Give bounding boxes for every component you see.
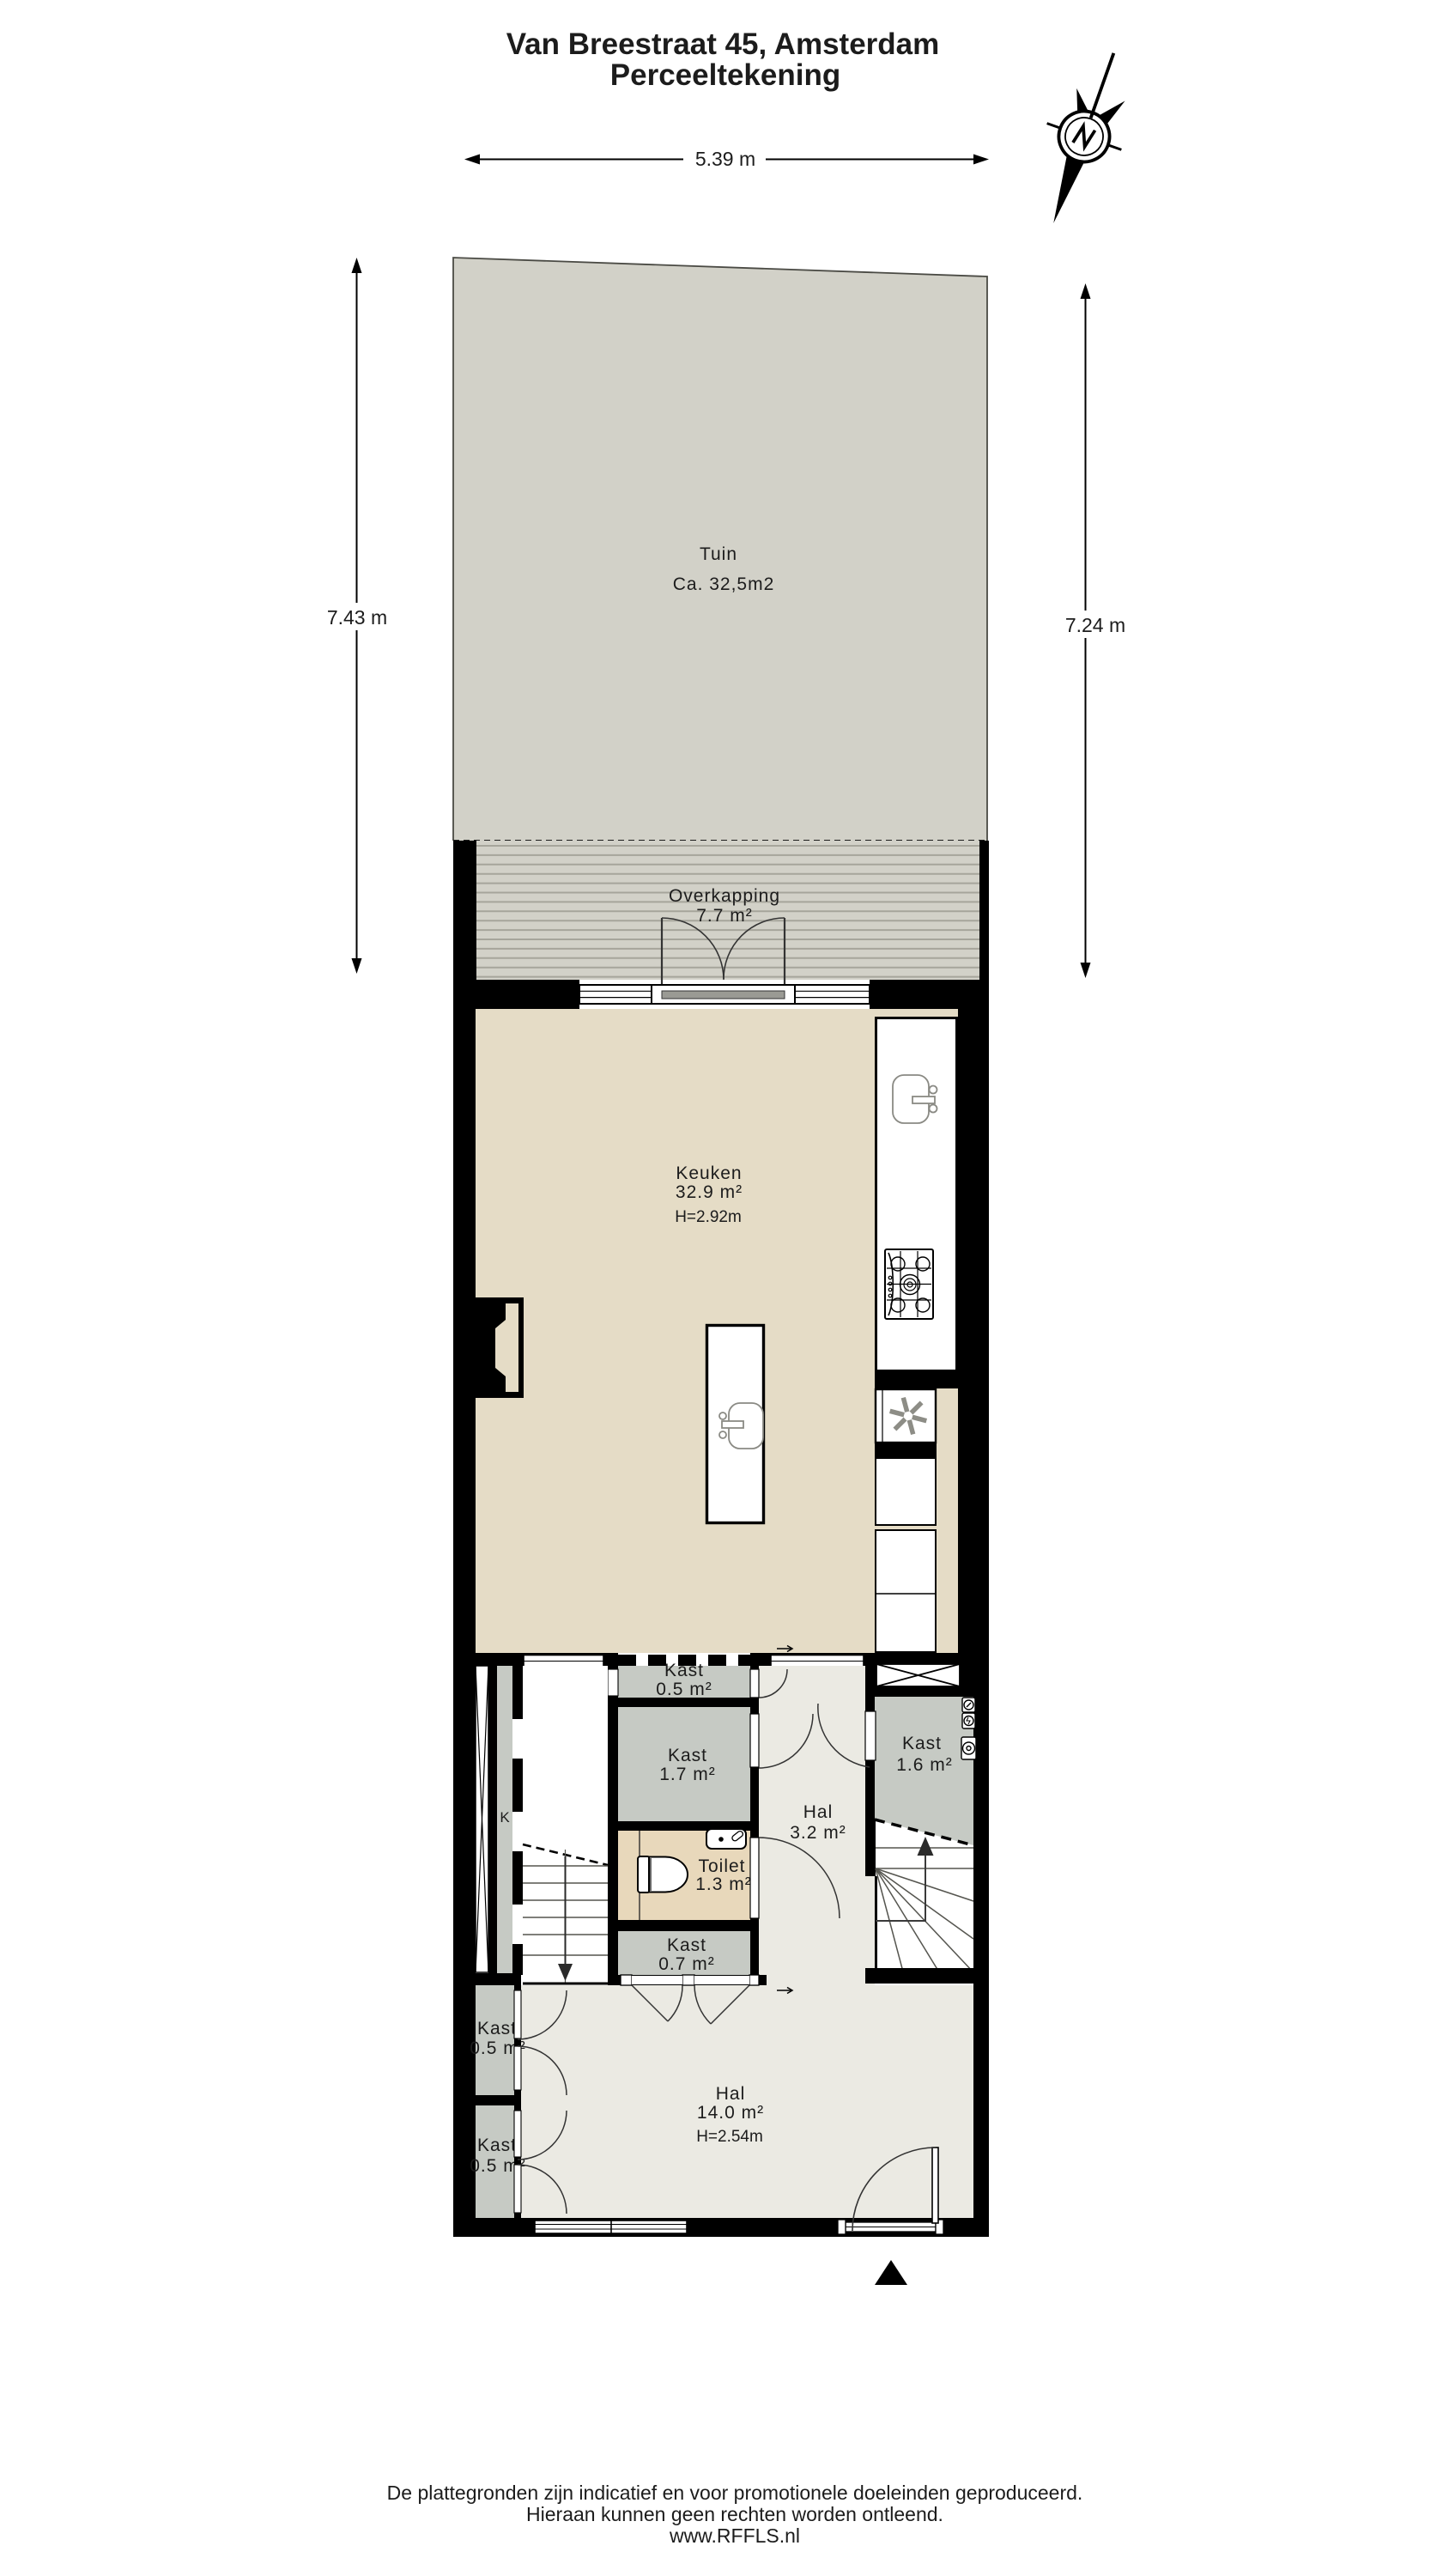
svg-text:Kast: Kast bbox=[477, 2136, 517, 2155]
svg-text:1.6 m²: 1.6 m² bbox=[896, 1755, 953, 1775]
svg-text:5.39 m: 5.39 m bbox=[695, 148, 755, 170]
svg-text:Hal: Hal bbox=[716, 2084, 746, 2104]
svg-text:H=2.54m: H=2.54m bbox=[696, 2128, 763, 2146]
svg-text:14.0 m²: 14.0 m² bbox=[697, 2103, 764, 2123]
svg-text:H=2.92m: H=2.92m bbox=[675, 1208, 742, 1226]
svg-text:Tuin: Tuin bbox=[700, 544, 737, 564]
svg-text:7.7 m²: 7.7 m² bbox=[696, 906, 753, 926]
svg-text:0.5 m²: 0.5 m² bbox=[656, 1680, 712, 1699]
svg-text:Ca. 32,5m2: Ca. 32,5m2 bbox=[673, 574, 775, 594]
svg-text:Hal: Hal bbox=[803, 1802, 834, 1822]
svg-text:1.7 m²: 1.7 m² bbox=[659, 1765, 716, 1784]
svg-text:Kast: Kast bbox=[902, 1734, 942, 1753]
svg-text:De plattegronden zijn indicati: De plattegronden zijn indicatief en voor… bbox=[387, 2482, 1083, 2504]
svg-text:0.7 m²: 0.7 m² bbox=[658, 1954, 715, 1974]
svg-text:Kast: Kast bbox=[477, 2019, 517, 2038]
svg-text:Overkapping: Overkapping bbox=[669, 886, 780, 906]
svg-text:Kast: Kast bbox=[668, 1746, 707, 1765]
svg-text:7.43 m: 7.43 m bbox=[327, 606, 387, 629]
svg-text:www.RFFLS.nl: www.RFFLS.nl bbox=[669, 2524, 800, 2547]
svg-text:Toilet: Toilet bbox=[698, 1856, 745, 1876]
svg-text:Kast: Kast bbox=[667, 1935, 706, 1955]
svg-text:Van Breestraat 45, Amsterdam: Van Breestraat 45, Amsterdam bbox=[506, 27, 940, 61]
svg-text:K: K bbox=[500, 1809, 510, 1826]
svg-text:32.9 m²: 32.9 m² bbox=[676, 1182, 743, 1202]
svg-text:1.3 m²: 1.3 m² bbox=[695, 1874, 752, 1894]
svg-text:Keuken: Keuken bbox=[676, 1163, 742, 1183]
svg-text:Hieraan kunnen geen rechten wo: Hieraan kunnen geen rechten worden ontle… bbox=[526, 2503, 943, 2525]
svg-text:3.2 m²: 3.2 m² bbox=[790, 1823, 846, 1843]
svg-text:7.24 m: 7.24 m bbox=[1065, 614, 1125, 636]
svg-text:Perceeltekening: Perceeltekening bbox=[610, 58, 840, 92]
svg-text:Kast: Kast bbox=[664, 1661, 704, 1680]
